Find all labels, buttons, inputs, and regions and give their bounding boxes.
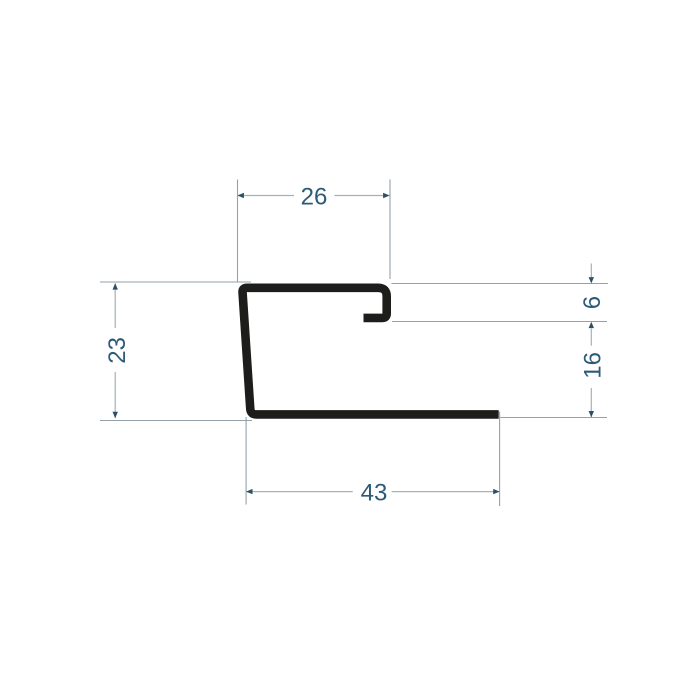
svg-text:26: 26 [301,184,328,211]
svg-text:16: 16 [580,352,607,379]
svg-text:6: 6 [579,296,606,309]
svg-text:23: 23 [104,337,131,364]
svg-text:43: 43 [361,480,388,507]
